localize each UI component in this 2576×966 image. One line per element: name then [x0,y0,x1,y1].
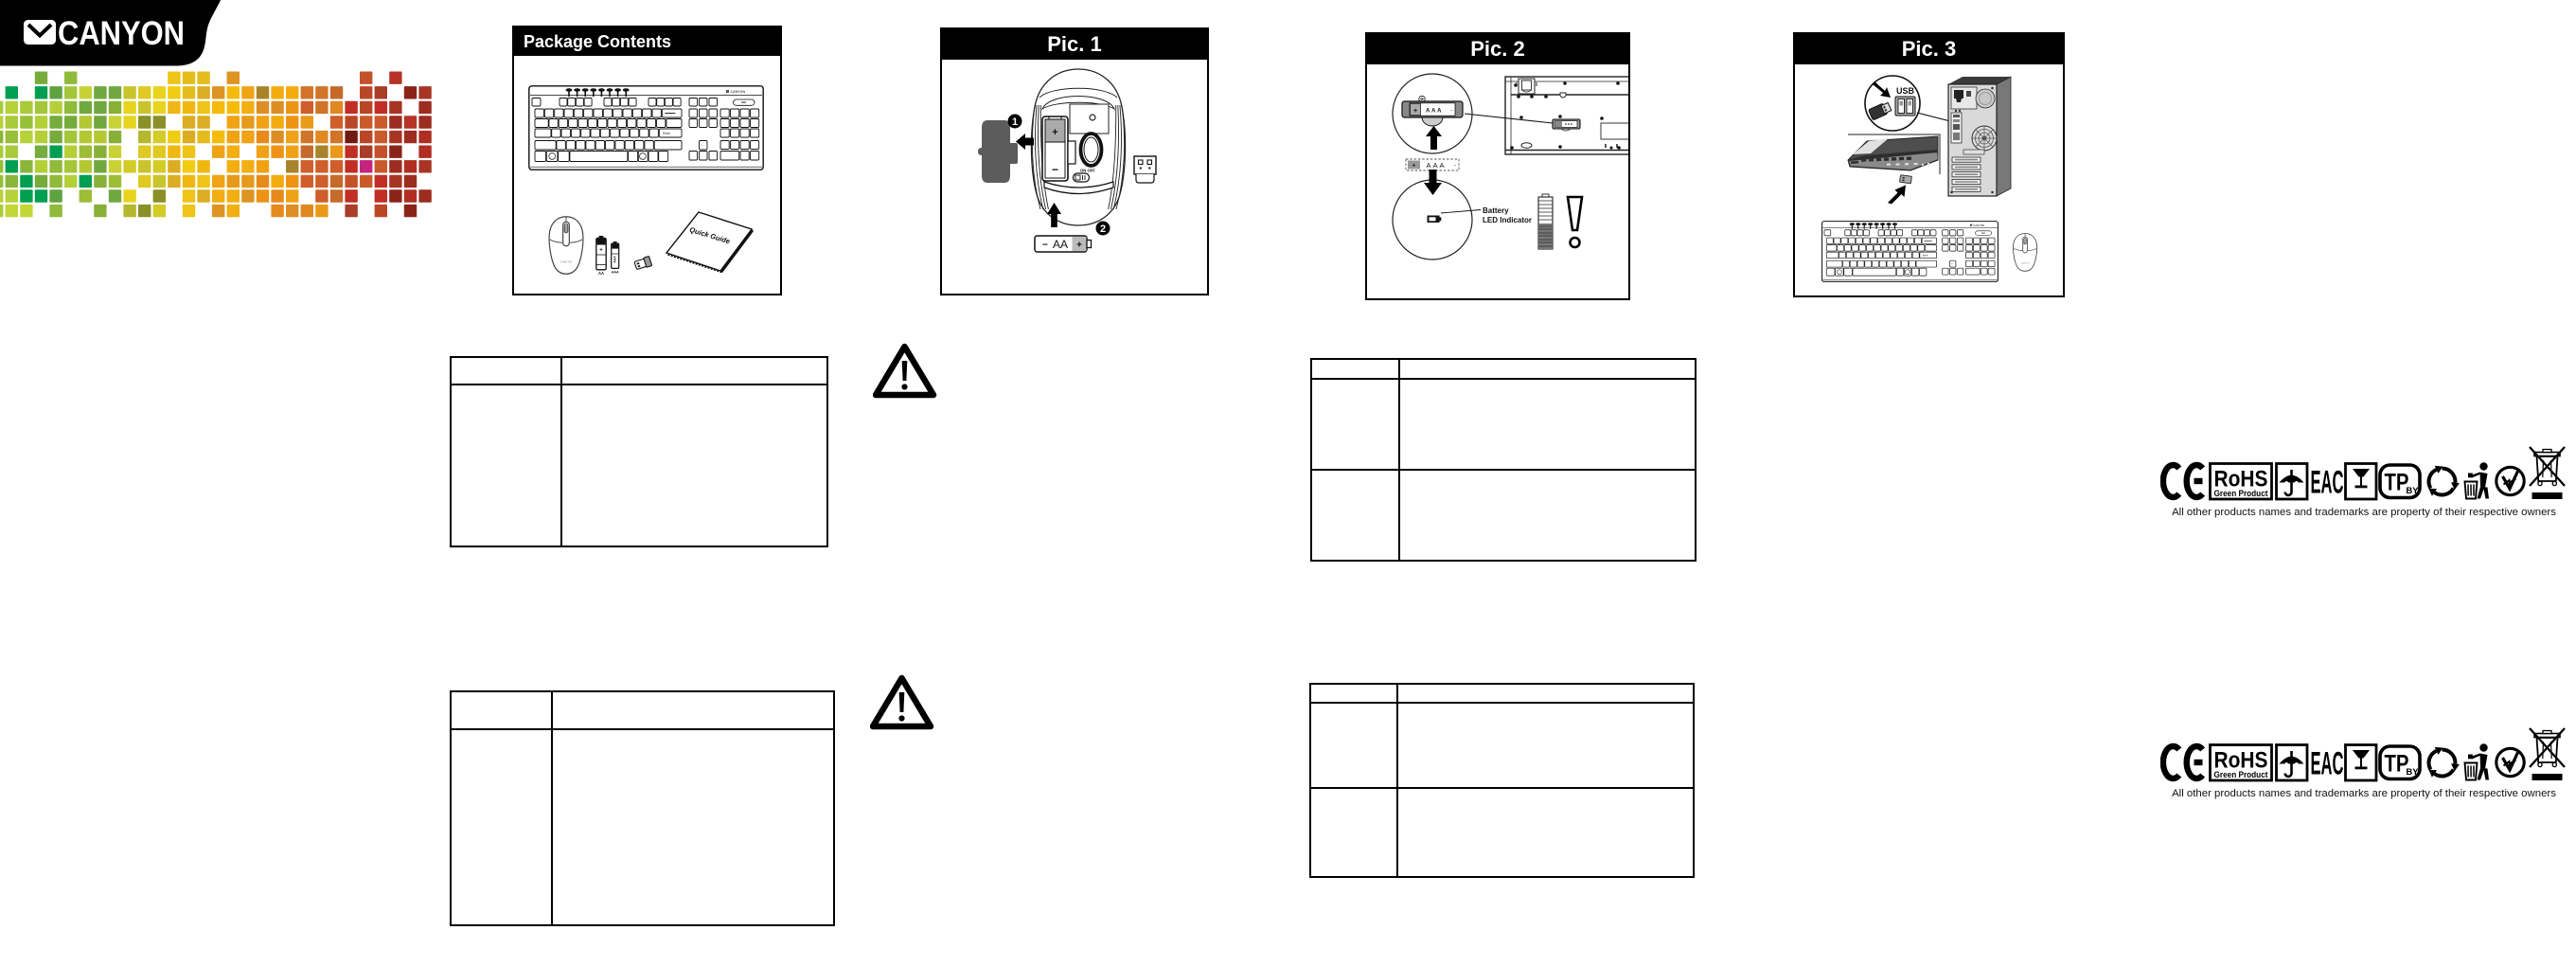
svg-text:CANYON: CANYON [1973,224,1984,227]
svg-text:CANYON: CANYON [731,90,746,94]
svg-text:2: 2 [1100,224,1106,235]
svg-text:LED Indicator: LED Indicator [1483,216,1532,224]
svg-text:USB: USB [1896,86,1915,96]
svg-text:Enter: Enter [1923,254,1928,257]
svg-text:+: + [1412,163,1416,170]
svg-text:BY: BY [2406,767,2419,778]
svg-text:+: + [1076,241,1082,251]
svg-text:EAC: EAC [2311,465,2344,501]
svg-text:ON OFF: ON OFF [1080,169,1095,173]
svg-text:AAA: AAA [1426,161,1446,170]
svg-text:1: 1 [1012,116,1018,128]
svg-text:EAC: EAC [2311,746,2344,782]
svg-text:+: + [599,248,603,254]
svg-text:−: − [1052,163,1058,176]
svg-text:^: ^ [702,143,703,148]
svg-text:-: - [1454,163,1456,169]
svg-text:AA: AA [1053,238,1068,251]
svg-text:AA: AA [598,271,604,276]
svg-text:CANYON: CANYON [58,15,185,52]
svg-text:AAA: AAA [613,256,617,263]
svg-text:AAA: AAA [612,270,619,274]
svg-text:BY: BY [2406,486,2419,496]
svg-text:CANYON: CANYON [560,260,573,264]
svg-text:Green Product: Green Product [2214,770,2268,779]
svg-text:Green Product: Green Product [2214,489,2268,498]
svg-text:+: + [1413,108,1417,115]
svg-text:Battery: Battery [1483,206,1509,215]
svg-text:−: − [1042,241,1048,251]
svg-text:-: - [1450,108,1452,114]
svg-text:+: + [1052,127,1057,138]
svg-text:AAA: AAA [1426,108,1443,115]
svg-text:Enter: Enter [663,132,671,135]
